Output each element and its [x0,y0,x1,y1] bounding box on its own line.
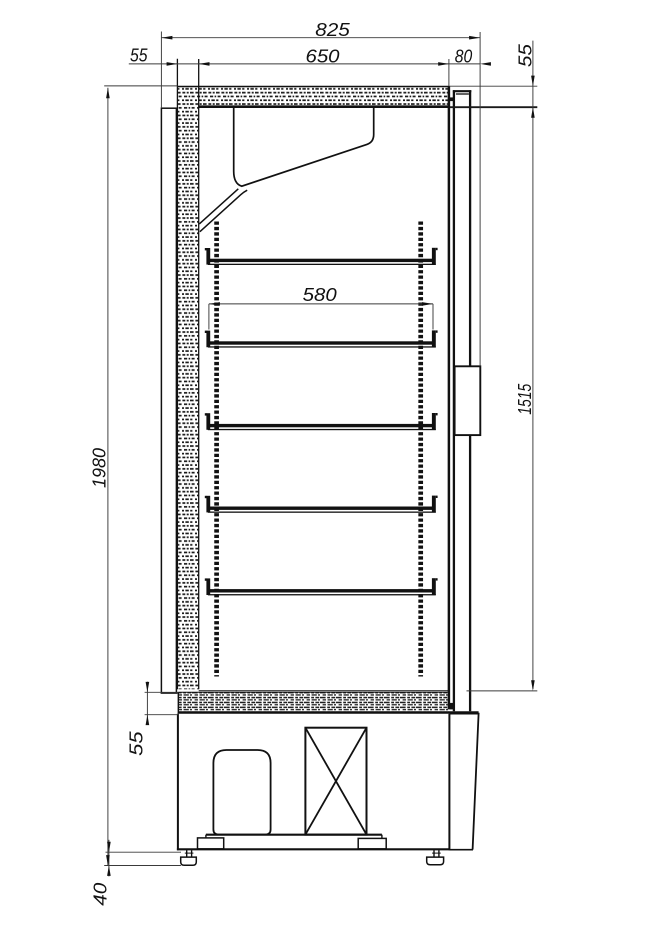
svg-text:1980: 1980 [88,447,109,488]
svg-text:650: 650 [306,45,341,66]
svg-text:55: 55 [515,43,536,67]
svg-text:580: 580 [303,284,338,305]
svg-text:80: 80 [455,45,473,66]
svg-text:1515: 1515 [514,383,535,415]
svg-text:55: 55 [126,731,147,756]
svg-text:825: 825 [315,19,350,40]
svg-text:40: 40 [89,882,110,906]
svg-text:55: 55 [130,44,148,65]
